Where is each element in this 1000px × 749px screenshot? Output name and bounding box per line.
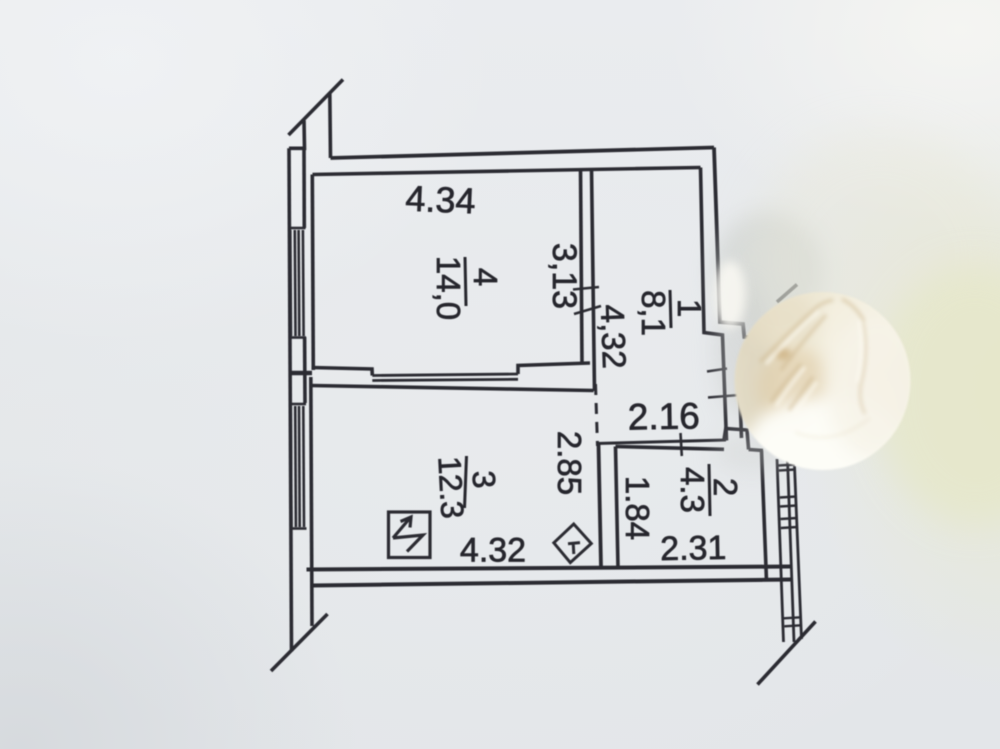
svg-text:1.84: 1.84 [619, 476, 656, 540]
svg-text:8,1: 8,1 [635, 290, 672, 336]
svg-text:2.85: 2.85 [551, 431, 588, 495]
svg-text:3,13: 3,13 [545, 243, 583, 309]
svg-text:3: 3 [466, 470, 503, 490]
svg-text:1: 1 [671, 299, 708, 317]
svg-text:4: 4 [467, 268, 504, 286]
svg-text:4.3: 4.3 [674, 467, 711, 513]
svg-text:4.32: 4.32 [460, 532, 526, 570]
svg-text:14,0: 14,0 [430, 256, 467, 320]
svg-text:4.34: 4.34 [405, 178, 477, 222]
svg-text:4,32: 4,32 [594, 304, 633, 369]
svg-text:12.3: 12.3 [431, 455, 470, 519]
svg-text:2: 2 [707, 478, 744, 496]
svg-text:2.31: 2.31 [660, 529, 727, 568]
svg-text:2.16: 2.16 [627, 395, 700, 437]
